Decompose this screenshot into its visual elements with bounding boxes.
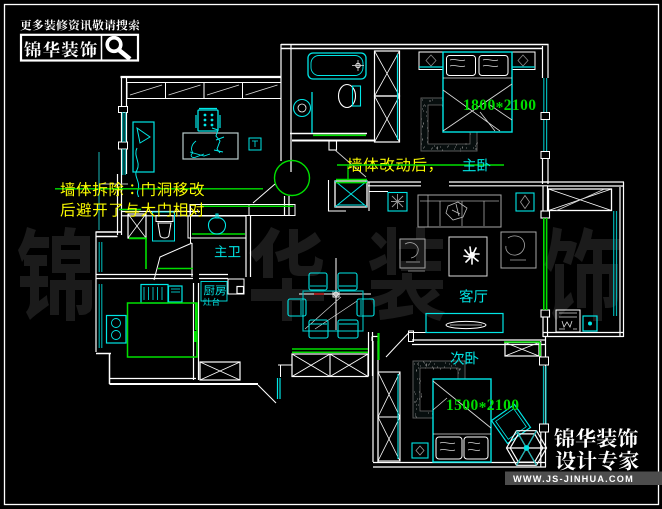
- svg-text:WWW.JS-JINHUA.COM: WWW.JS-JINHUA.COM: [513, 474, 634, 484]
- svg-text:1500*2100: 1500*2100: [446, 397, 519, 417]
- svg-text:1800*2100: 1800*2100: [463, 97, 536, 117]
